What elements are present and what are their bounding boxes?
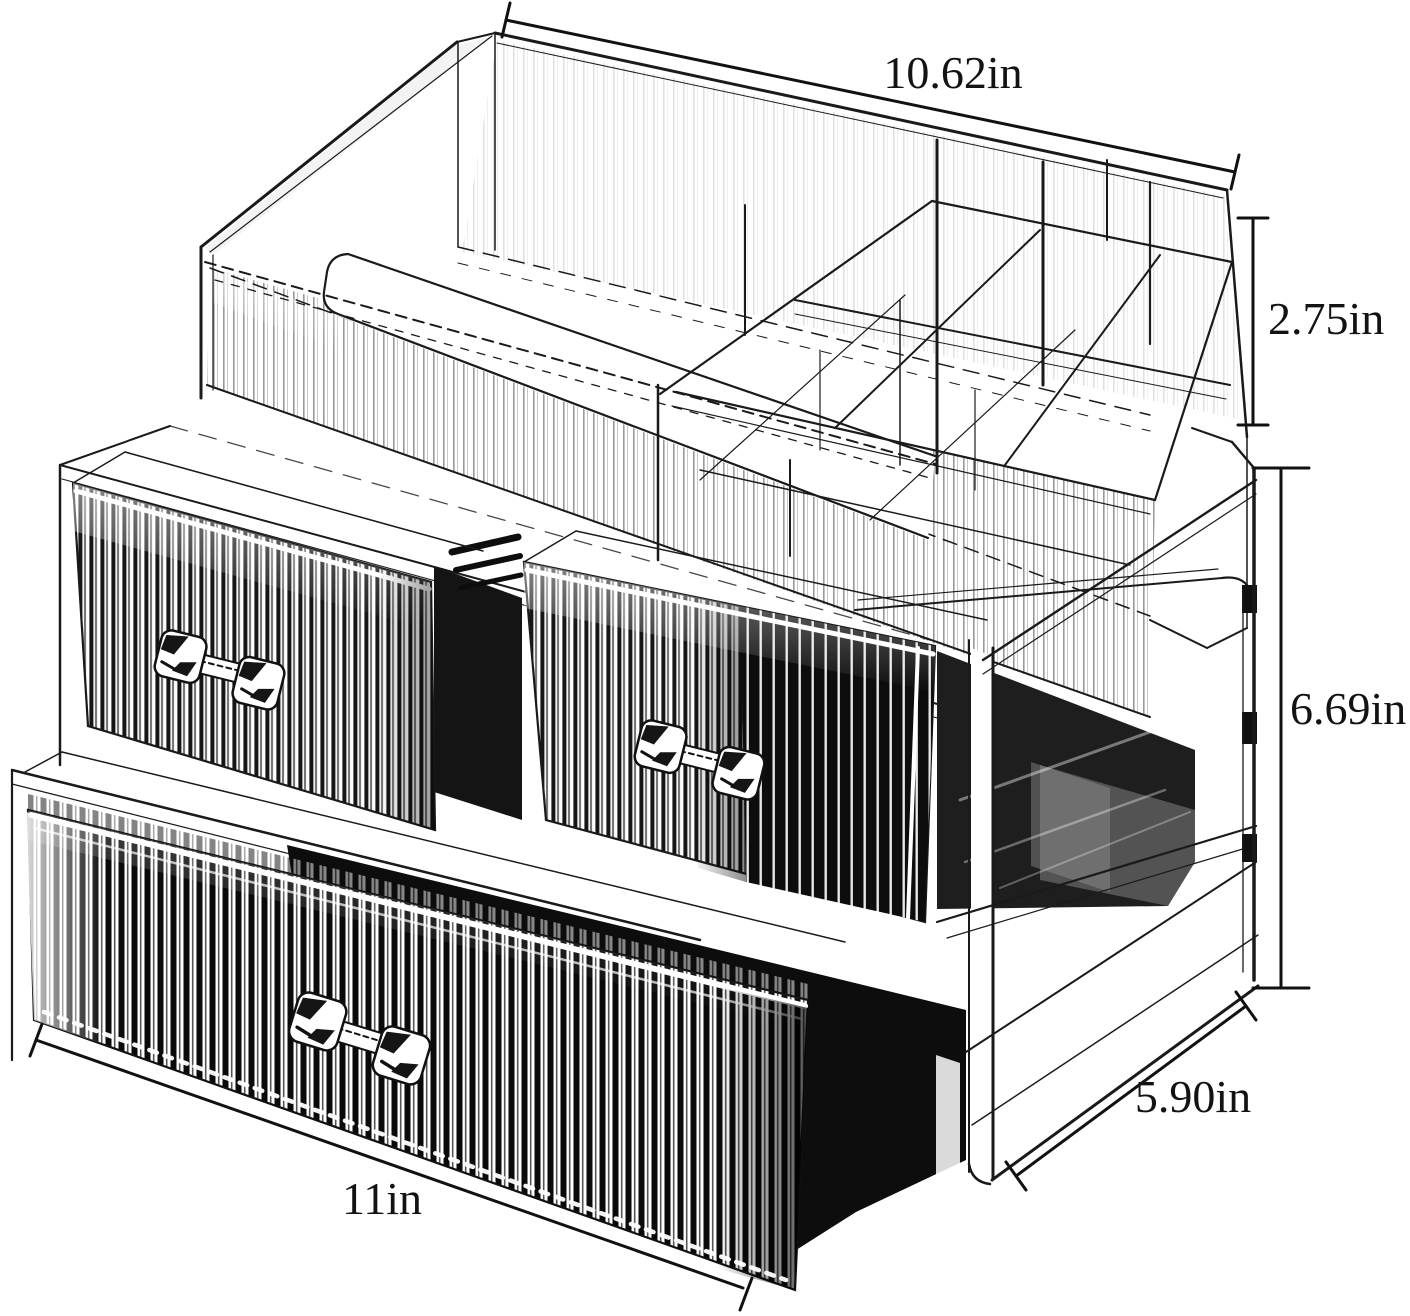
svg-text:10.62in: 10.62in — [883, 47, 1022, 98]
svg-text:5.90in: 5.90in — [1135, 1071, 1251, 1122]
svg-text:2.75in: 2.75in — [1268, 293, 1384, 344]
svg-text:6.69in: 6.69in — [1290, 683, 1406, 734]
svg-text:11in: 11in — [342, 1173, 422, 1224]
